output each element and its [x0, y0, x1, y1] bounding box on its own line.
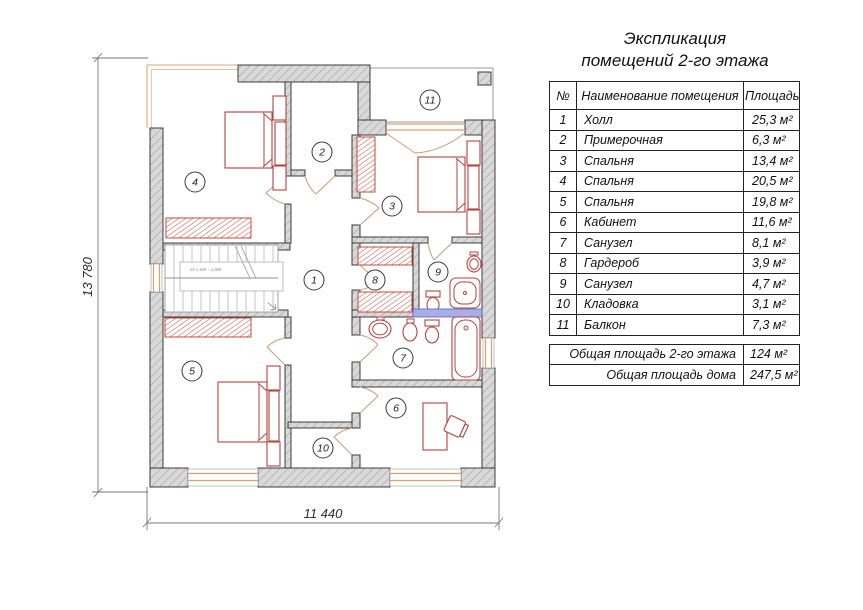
header-name: Наименование помещения	[577, 82, 744, 110]
sink-room9	[467, 252, 481, 272]
total-house-value: 247,5 м²	[744, 365, 800, 386]
bidet-room7	[403, 319, 417, 341]
svg-text:6: 6	[393, 403, 399, 415]
title-line-2: помещений 2-го этажа	[549, 50, 801, 72]
svg-text:10: 10	[317, 443, 329, 455]
table-header-row: № Наименование помещения Площадь	[550, 82, 800, 110]
toilet-room7	[425, 320, 439, 343]
knee-wall-glazing	[147, 65, 238, 128]
total-floor-row: Общая площадь 2-го этажа 124 м²	[550, 344, 800, 365]
table-row: 9Санузел4,7 м²	[550, 274, 800, 295]
explication-legend: Экспликация помещений 2-го этажа № Наиме…	[549, 28, 801, 386]
room-label-8: 8	[365, 270, 385, 290]
office-furniture	[423, 403, 469, 450]
door-room7	[360, 335, 378, 362]
total-house-label: Общая площадь дома	[550, 365, 744, 386]
door-room5	[267, 338, 285, 365]
svg-text:4: 4	[192, 177, 198, 189]
stairs: 20 x 180 = 3,600	[165, 245, 283, 312]
svg-text:5: 5	[189, 366, 195, 378]
closet-room8-top	[358, 247, 412, 265]
totals-table: Общая площадь 2-го этажа 124 м² Общая пл…	[549, 344, 800, 386]
svg-text:9: 9	[435, 267, 441, 279]
table-row: 3Спальня13,4 м²	[550, 151, 800, 172]
balcony-door-window	[386, 124, 465, 153]
svg-text:8: 8	[372, 275, 378, 287]
table-row: 2Примерочная6,3 м²	[550, 130, 800, 151]
svg-text:2: 2	[318, 147, 325, 159]
closet-room8-bottom	[358, 292, 412, 312]
dimension-width: 11 440	[143, 487, 503, 530]
window-right	[483, 338, 494, 368]
total-floor-value: 124 м²	[744, 344, 800, 365]
window-bottom-left	[188, 469, 258, 486]
stairs-note: 20 x 180 = 3,600	[189, 267, 222, 272]
header-area: Площадь	[744, 82, 800, 110]
closet-room3	[357, 137, 375, 192]
svg-text:1: 1	[311, 275, 317, 287]
room-label-1: 1	[304, 270, 324, 290]
shower-room9	[450, 278, 480, 308]
bathroom7-fixtures	[369, 317, 480, 380]
room-label-6: 6	[386, 398, 406, 418]
room-table: № Наименование помещения Площадь 1Холл25…	[549, 81, 800, 336]
table-row: 5Спальня19,8 м²	[550, 192, 800, 213]
desk-room6	[423, 403, 447, 450]
svg-text:11: 11	[425, 95, 436, 107]
table-row: 1Холл25,3 м²	[550, 110, 800, 131]
window-bottom-right	[390, 469, 461, 486]
shower-glass-screen	[413, 309, 482, 317]
svg-text:3: 3	[389, 201, 395, 213]
floor-plan: 20 x 180 = 3,600	[78, 25, 528, 540]
chimney-shaft	[478, 72, 491, 85]
title-line-1: Экспликация	[549, 28, 801, 50]
table-row: 11Балкон7,3 м²	[550, 315, 800, 336]
closet-room4	[166, 218, 251, 238]
door-room2	[305, 176, 335, 194]
table-row: 6Кабинет11,6 м²	[550, 212, 800, 233]
bed-room4	[225, 96, 286, 190]
header-num: №	[550, 82, 577, 110]
bed-room5	[218, 366, 280, 466]
total-house-row: Общая площадь дома 247,5 м²	[550, 365, 800, 386]
table-row: 10Кладовка3,1 м²	[550, 294, 800, 315]
svg-text:11 440: 11 440	[304, 506, 344, 521]
table-row: 4Спальня20,5 м²	[550, 171, 800, 192]
door-room6	[360, 387, 378, 413]
room-label-3: 3	[382, 196, 402, 216]
dimension-height: 13 780	[80, 53, 148, 497]
room-label-4: 4	[185, 172, 205, 192]
door-room9	[428, 243, 452, 260]
room-label-7: 7	[393, 348, 413, 368]
table-row: 7Санузел8,1 м²	[550, 233, 800, 254]
sink-room7	[369, 317, 391, 338]
door-room3	[360, 198, 379, 225]
svg-text:13 780: 13 780	[80, 256, 95, 297]
room-label-5: 5	[182, 361, 202, 381]
total-floor-label: Общая площадь 2-го этажа	[550, 344, 744, 365]
drawing-sheet: 20 x 180 = 3,600	[0, 0, 863, 610]
page-title: Экспликация помещений 2-го этажа	[549, 28, 801, 72]
closet-room5	[165, 318, 251, 337]
table-row: 8Гардероб3,9 м²	[550, 253, 800, 274]
room-label-2: 2	[312, 142, 332, 162]
room-label-11: 11	[420, 90, 440, 110]
room-label-10: 10	[313, 438, 333, 458]
door-room10	[334, 428, 352, 455]
bed-room3	[418, 141, 480, 234]
bathtub-room7	[452, 317, 480, 380]
bathroom9-fixtures	[413, 252, 482, 317]
window-left	[151, 264, 162, 292]
room-label-9: 9	[428, 262, 448, 282]
